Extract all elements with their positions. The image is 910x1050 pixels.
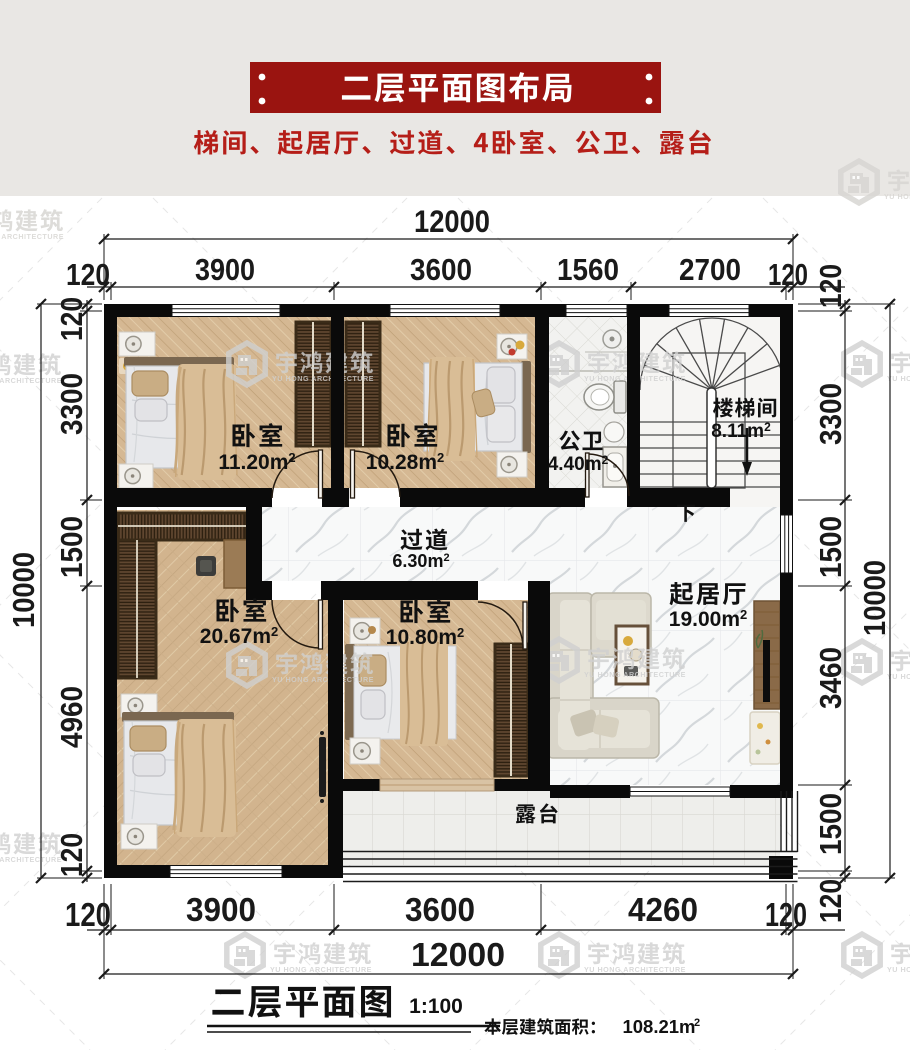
svg-text:120: 120 xyxy=(54,297,89,341)
svg-text:12000: 12000 xyxy=(411,936,505,973)
svg-text:YU HONG ARCHITECTURE: YU HONG ARCHITECTURE xyxy=(0,376,62,385)
svg-text:YU HONG ARCHITECTURE: YU HONG ARCHITECTURE xyxy=(272,374,374,383)
svg-text:3300: 3300 xyxy=(813,383,848,445)
svg-text:120: 120 xyxy=(813,264,848,308)
svg-text:120: 120 xyxy=(768,257,808,292)
svg-text:3600: 3600 xyxy=(410,252,472,287)
svg-text:3600: 3600 xyxy=(405,891,475,928)
svg-text:1500: 1500 xyxy=(813,516,848,578)
svg-text:120: 120 xyxy=(65,896,111,933)
svg-text:4.40m2: 4.40m2 xyxy=(548,453,609,475)
svg-text:YU HONG ARCHITECTURE: YU HONG ARCHITECTURE xyxy=(270,965,372,974)
svg-text:1:100: 1:100 xyxy=(409,995,463,1018)
svg-text:120: 120 xyxy=(813,879,848,923)
svg-text:YU HONG ARCHITECTURE: YU HONG ARCHITECTURE xyxy=(884,192,910,201)
svg-text:1500: 1500 xyxy=(54,516,89,578)
svg-text:108.21m: 108.21m xyxy=(622,1016,695,1037)
svg-text:10000: 10000 xyxy=(857,560,892,636)
svg-text:11.20m2: 11.20m2 xyxy=(218,450,295,474)
svg-text:4960: 4960 xyxy=(54,686,89,748)
svg-text:YU HONG ARCHITECTURE: YU HONG ARCHITECTURE xyxy=(584,965,686,974)
svg-text:20.67m2: 20.67m2 xyxy=(200,624,278,648)
svg-text:YU HONG ARCHITECTURE: YU HONG ARCHITECTURE xyxy=(272,675,374,684)
svg-text:YU HONG ARCHITECTURE: YU HONG ARCHITECTURE xyxy=(0,855,62,864)
svg-text:3900: 3900 xyxy=(195,252,255,287)
svg-text:1560: 1560 xyxy=(557,252,619,287)
svg-text:2: 2 xyxy=(694,1017,700,1029)
svg-text:3300: 3300 xyxy=(54,373,89,435)
svg-text:19.00m2: 19.00m2 xyxy=(669,607,747,631)
svg-text:120: 120 xyxy=(765,896,807,933)
svg-text:10000: 10000 xyxy=(6,552,41,628)
svg-text:6.30m2: 6.30m2 xyxy=(392,551,449,571)
svg-text:3460: 3460 xyxy=(813,647,848,709)
svg-text:120: 120 xyxy=(66,257,110,292)
svg-text:10.28m2: 10.28m2 xyxy=(366,450,444,474)
svg-text:10.80m2: 10.80m2 xyxy=(386,625,464,649)
svg-text:1500: 1500 xyxy=(813,793,848,855)
svg-text:4260: 4260 xyxy=(628,891,698,928)
svg-text:YU HONG ARCHITECTURE: YU HONG ARCHITECTURE xyxy=(887,965,910,974)
svg-text:120: 120 xyxy=(54,833,89,877)
svg-text:YU HONG ARCHITECTURE: YU HONG ARCHITECTURE xyxy=(584,670,686,679)
svg-text:12000: 12000 xyxy=(414,203,490,239)
svg-text:3900: 3900 xyxy=(186,891,256,928)
svg-text:2700: 2700 xyxy=(679,252,741,287)
svg-text:YU HONG ARCHITECTURE: YU HONG ARCHITECTURE xyxy=(0,232,64,241)
svg-text:8.11m2: 8.11m2 xyxy=(711,420,771,442)
